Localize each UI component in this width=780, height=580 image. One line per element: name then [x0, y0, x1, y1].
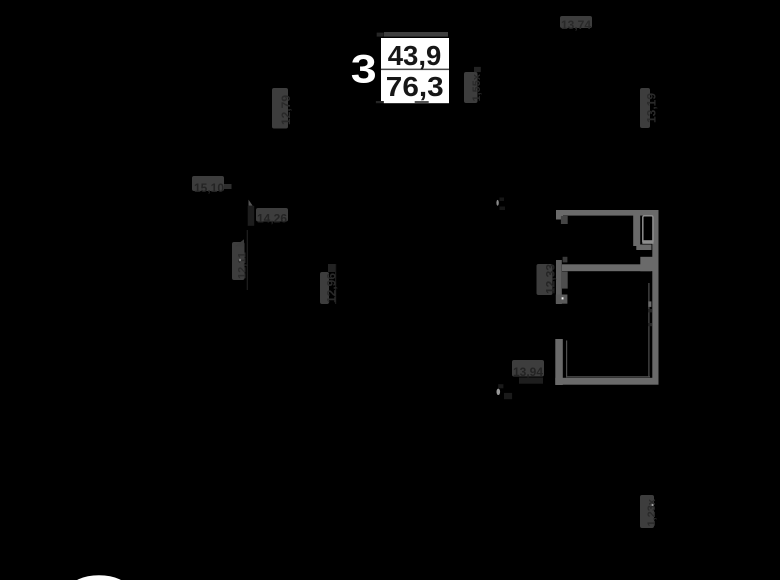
svg-text:76,3: 76,3 — [386, 72, 444, 103]
svg-text:15,10: 15,10 — [194, 181, 224, 195]
svg-text:13,94: 13,94 — [513, 365, 543, 379]
svg-text:12,11: 12,11 — [237, 252, 249, 279]
svg-text:12,96: 12,96 — [325, 273, 339, 303]
svg-text:3: 3 — [351, 48, 377, 92]
svg-text:12,33: 12,33 — [544, 264, 558, 294]
svg-text:13,19: 13,19 — [645, 93, 659, 123]
svg-text:13,74: 13,74 — [561, 18, 591, 32]
svg-text:14,26: 14,26 — [257, 212, 287, 226]
svg-text:1,55х: 1,55х — [471, 73, 483, 101]
svg-text:43,9: 43,9 — [388, 40, 442, 71]
svg-text:1,23х: 1,23х — [646, 498, 658, 526]
svg-text:12,79: 12,79 — [279, 95, 293, 125]
